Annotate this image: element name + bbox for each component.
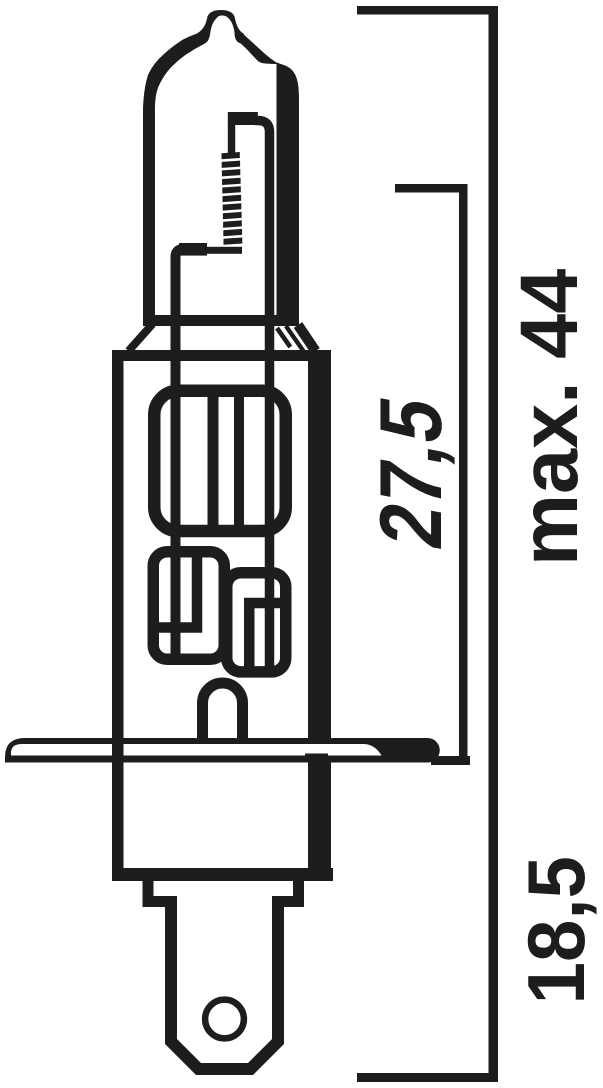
svg-text:18,5: 18,5 — [511, 856, 602, 1004]
svg-text:max. 44: max. 44 — [504, 269, 596, 566]
svg-text:27,5: 27,5 — [361, 390, 460, 555]
